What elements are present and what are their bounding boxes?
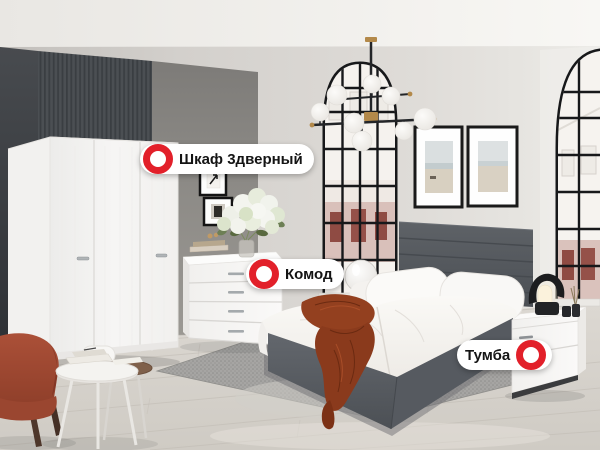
dresser-hotspot-label[interactable]: Комод [246, 259, 344, 289]
wardrobe-handle-right [156, 254, 167, 257]
slat-accent-wall [38, 51, 152, 142]
bedroom-furniture-showcase: Шкаф 3дверный Комод Тумба [0, 0, 600, 450]
nightstand-hotspot-label[interactable]: Тумба [457, 340, 552, 370]
room-scene [0, 0, 600, 450]
hotspot-ring-icon[interactable] [143, 144, 173, 174]
hotspot-ring-icon[interactable] [249, 259, 279, 289]
hotspot-label-text: Шкаф 3дверный [179, 152, 303, 167]
wall-art-beach-left [415, 127, 462, 207]
hotspot-ring-icon[interactable] [516, 340, 546, 370]
wall-art-beach-right [468, 127, 517, 206]
hotspot-label-text: Тумба [465, 348, 510, 363]
candle-jar [562, 306, 571, 317]
hotspot-label-text: Комод [285, 267, 333, 282]
wardrobe-handle-left [77, 257, 89, 260]
wardrobe-hotspot-label[interactable]: Шкаф 3дверный [140, 144, 314, 174]
